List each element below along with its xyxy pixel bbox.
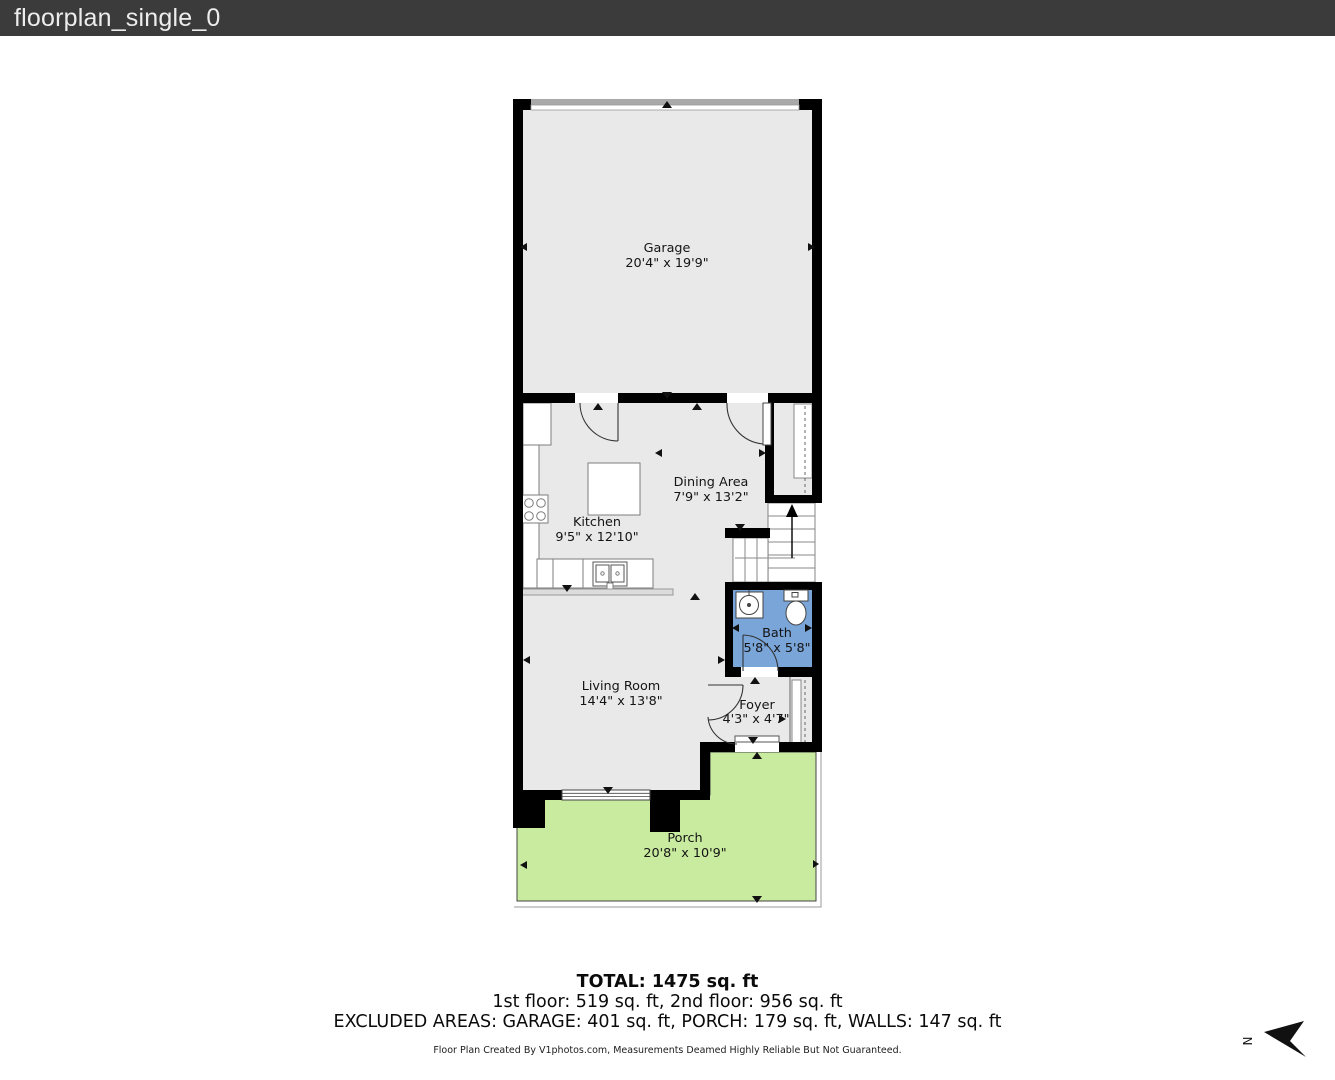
floorplan-canvas: Garage 20'4" x 19'9" Kitchen 9'5" x 12'1…	[0, 0, 1335, 1080]
door-leaf	[763, 403, 771, 445]
window	[562, 790, 650, 800]
counter-edge-bar	[515, 589, 673, 595]
burner-icon	[537, 512, 546, 521]
floor-areas-text: 1st floor: 519 sq. ft, 2nd floor: 956 sq…	[0, 992, 1335, 1012]
entry-door-leaf	[735, 736, 779, 742]
sink-drain-icon	[616, 572, 619, 575]
door-opening	[727, 393, 768, 403]
toilet-bowl	[786, 601, 806, 625]
wall	[812, 99, 822, 503]
wall	[513, 99, 523, 800]
door-opening	[741, 667, 778, 677]
excluded-areas-text: EXCLUDED AREAS: GARAGE: 401 sq. ft, PORC…	[0, 1012, 1335, 1032]
room-label-bath: Bath	[762, 626, 792, 641]
room-label-living: Living Room	[582, 679, 661, 694]
porch-post	[513, 790, 545, 828]
room-dims-dining: 7'9" x 13'2"	[673, 490, 748, 505]
foyer-closet-shelf	[792, 680, 801, 743]
room-label-dining: Dining Area	[674, 475, 749, 490]
room-dims-living: 14'4" x 13'8"	[579, 694, 662, 709]
room-label-garage: Garage	[644, 241, 691, 256]
door-opening	[735, 742, 779, 752]
room-label-kitchen: Kitchen	[573, 515, 621, 530]
area-summary: TOTAL: 1475 sq. ft 1st floor: 519 sq. ft…	[0, 972, 1335, 1032]
toilet-flush-icon	[792, 593, 798, 598]
kitchen-island	[588, 463, 640, 515]
pantry-shelf	[794, 404, 812, 478]
room-dims-bath: 5'8" x 5'8"	[743, 641, 810, 656]
room-dims-foyer: 4'3" x 4'7"	[722, 712, 789, 727]
room-dims-porch: 20'8" x 10'9"	[643, 846, 726, 861]
wall	[725, 528, 770, 538]
wall	[725, 582, 733, 677]
door-opening	[575, 393, 618, 403]
room-dims-garage: 20'4" x 19'9"	[625, 256, 708, 271]
credit-text: Floor Plan Created By V1photos.com, Meas…	[0, 1045, 1335, 1056]
page: floorplan_single_0	[0, 0, 1335, 1080]
burner-icon	[525, 499, 534, 508]
refrigerator	[523, 403, 551, 445]
stair-lower-flight	[733, 538, 768, 582]
room-label-porch: Porch	[667, 831, 702, 846]
wall	[765, 495, 822, 503]
dishwasher	[553, 559, 583, 588]
total-area-text: TOTAL: 1475 sq. ft	[0, 972, 1335, 992]
room-label-foyer: Foyer	[739, 698, 775, 713]
burner-icon	[537, 499, 546, 508]
wall	[725, 582, 822, 590]
room-dims-kitchen: 9'5" x 12'10"	[555, 530, 638, 545]
bath-sink-drain-icon	[748, 604, 751, 607]
burner-icon	[525, 512, 534, 521]
porch-post	[650, 790, 680, 832]
sink-drain-icon	[601, 572, 604, 575]
